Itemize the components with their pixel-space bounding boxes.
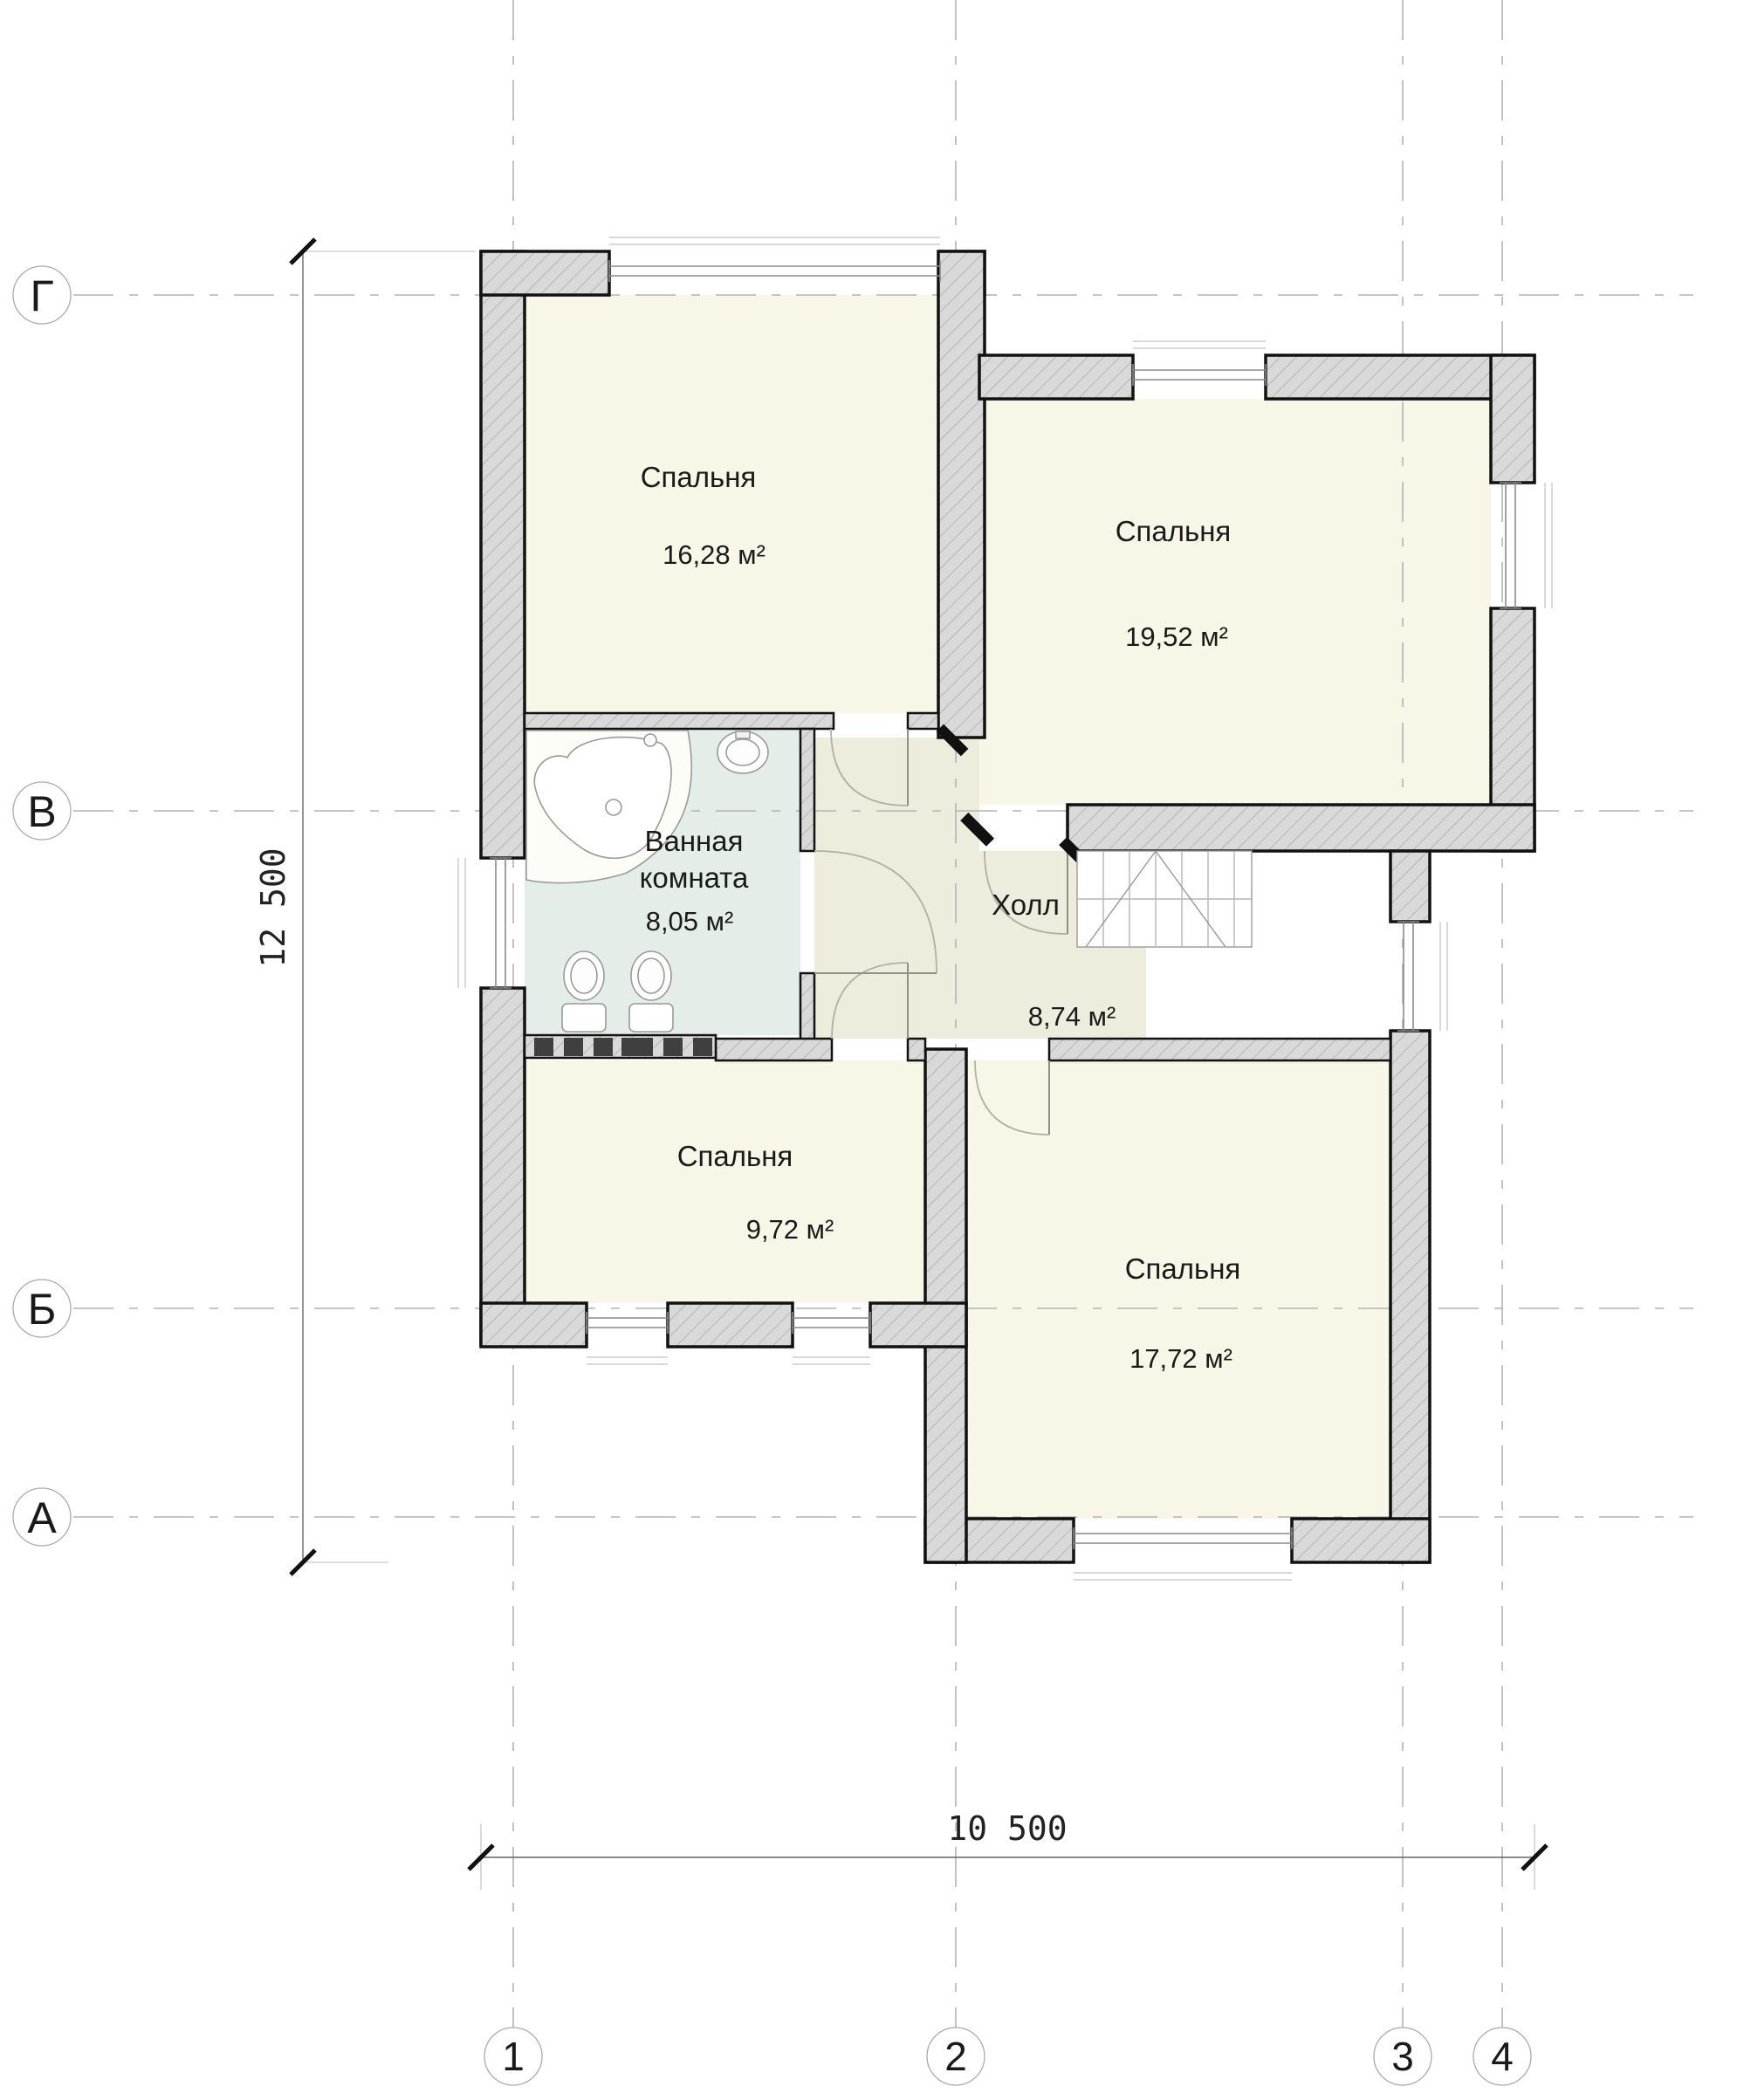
- bedroom-top-left-floor: [525, 295, 938, 713]
- wall-bottom-left-c: [870, 1303, 966, 1347]
- wall-left-upper: [481, 251, 525, 858]
- bathroom-area: 8,05 м²: [646, 906, 734, 937]
- wall-bathroom-top-a: [525, 713, 834, 729]
- axis-row-label-a: А: [27, 1493, 57, 1542]
- wall-right-upper-a: [1491, 355, 1534, 483]
- hall-floor-left: [814, 738, 979, 1039]
- floor-plan-canvas: 12 500 10 500 Г В Б А 1 2 3 4 Спальня 16…: [0, 0, 1737, 2100]
- toilet-icon-2: [629, 951, 673, 1032]
- wall-bathroom-right-a: [800, 729, 814, 851]
- window-bottom-left-b: [793, 1312, 870, 1364]
- wall-bedroom-tr-bottom: [1068, 805, 1534, 851]
- bedroom-top-right-floor: [979, 399, 1491, 805]
- window-left-bathroom: [458, 858, 511, 988]
- wall-bottom-left-a: [481, 1303, 587, 1347]
- axis-bubbles-cols: 1 2 3 4: [484, 2028, 1531, 2085]
- wall-party-upper: [938, 251, 985, 738]
- axis-col-label-2: 2: [944, 2034, 967, 2079]
- axis-row-label-g: Г: [30, 271, 53, 320]
- dimension-horizontal-value: 10 500: [947, 1809, 1067, 1848]
- bedroom-bottom-left-label: Спальня: [677, 1140, 793, 1172]
- wall-bathroom-top-b: [908, 713, 938, 729]
- axis-row-label-v: В: [27, 787, 56, 836]
- wall-top-right-a: [979, 355, 1133, 399]
- dimension-vertical-value: 12 500: [254, 848, 292, 967]
- bathroom-label-line2: комната: [640, 861, 749, 894]
- window-top-right: [1133, 341, 1266, 386]
- wall-top-left-a: [481, 251, 609, 295]
- wall-right-lower-b: [1390, 1031, 1430, 1562]
- bedroom-bottom-left-area: 9,72 м²: [746, 1214, 834, 1245]
- hall-label: Холл: [992, 889, 1060, 921]
- bedroom-bottom-right-area: 17,72 м²: [1129, 1343, 1232, 1374]
- axis-col-label-1: 1: [502, 2034, 525, 2079]
- window-right-lower: [1397, 922, 1447, 1031]
- window-bottom-right: [1074, 1527, 1292, 1580]
- axis-bubbles-rows: Г В Б А: [13, 266, 71, 1546]
- staircase-icon: [1077, 851, 1252, 947]
- wall-hall-bottom-c: [1049, 1039, 1390, 1060]
- wall-bottom-left-b: [668, 1303, 793, 1347]
- axis-col-label-3: 3: [1391, 2034, 1414, 2079]
- sink-icon: [717, 731, 768, 773]
- wall-hall-bottom-b: [908, 1039, 925, 1060]
- axis-row-label-b: Б: [28, 1285, 57, 1334]
- window-bottom-left-a: [587, 1312, 668, 1364]
- dimension-horizontal: 10 500: [469, 1809, 1547, 1890]
- wall-bottom-right-b: [1292, 1519, 1430, 1562]
- axis-col-label-4: 4: [1491, 2034, 1514, 2079]
- wall-right-lower-a: [1390, 851, 1430, 922]
- toilet-icon: [562, 951, 606, 1032]
- bedroom-top-left-label: Спальня: [641, 461, 757, 493]
- bedroom-top-right-label: Спальня: [1116, 515, 1232, 547]
- window-right-upper: [1500, 483, 1552, 608]
- hall-area: 8,74 м²: [1028, 1001, 1116, 1032]
- dimension-vertical: 12 500: [254, 239, 476, 1575]
- bedroom-bottom-right-floor: [966, 1060, 1390, 1519]
- floor-plan-page: 12 500 10 500 Г В Б А 1 2 3 4 Спальня 16…: [0, 0, 1737, 2100]
- bathroom-label-line1: Ванная: [644, 825, 743, 857]
- wall-hall-bottom-a: [716, 1039, 832, 1060]
- bedroom-bottom-right-label: Спальня: [1125, 1252, 1241, 1285]
- bedroom-top-left-area: 16,28 м²: [663, 539, 766, 570]
- bedroom-top-right-area: 19,52 м²: [1125, 621, 1228, 652]
- wall-left-lower: [481, 988, 525, 1345]
- window-top-left: [609, 237, 940, 282]
- bedroom-bottom-left-floor: [525, 1060, 925, 1303]
